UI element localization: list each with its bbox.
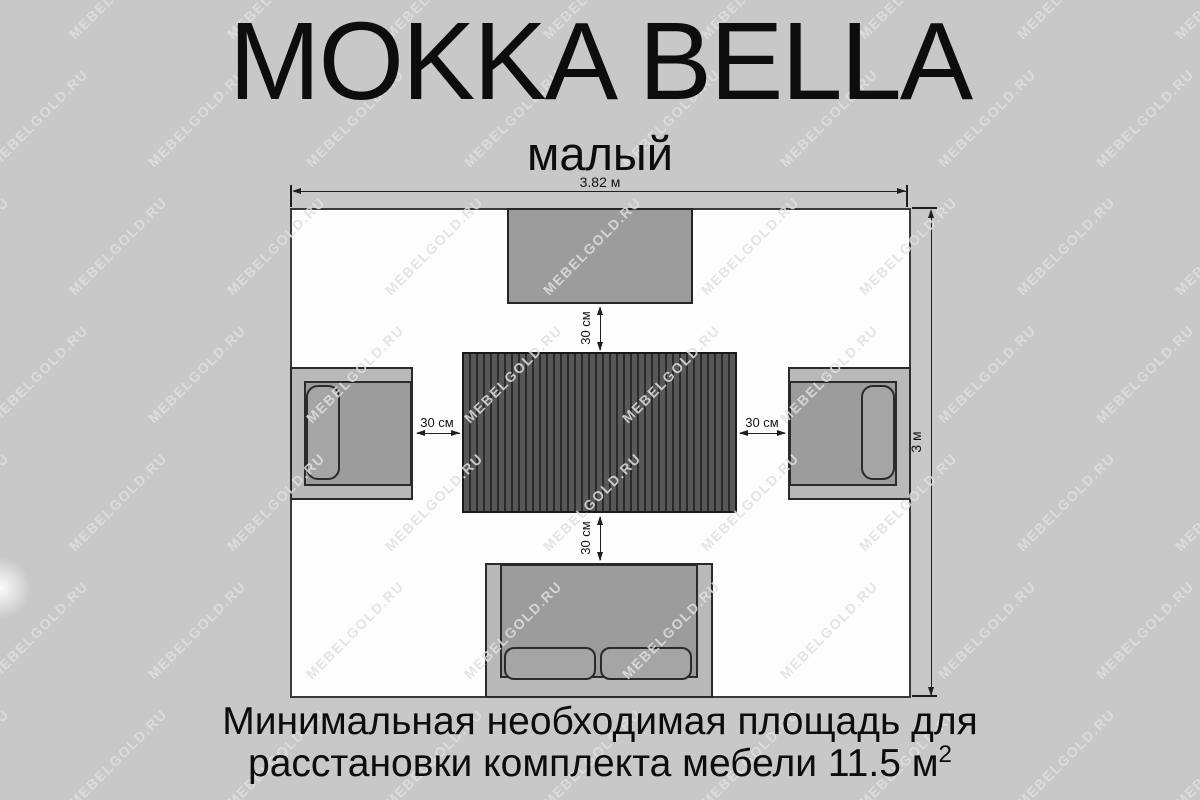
caption: Минимальная необходимая площадь для расс… [0, 701, 1200, 785]
caption-line-2-text: расстановки комплекта мебели 11.5 м [248, 742, 939, 785]
arrow-right-icon [777, 430, 786, 436]
caption-line-2: расстановки комплекта мебели 11.5 м2 [0, 742, 1200, 784]
arrow-down-icon [597, 342, 603, 351]
room-height-label: 3 м [908, 419, 924, 465]
page-title: MOKKA BELLA [0, 6, 1200, 118]
armchair-right-cushion [861, 385, 895, 480]
arrow-left-icon [416, 430, 425, 436]
arrow-down-icon [597, 552, 603, 561]
width-dimension-line [294, 191, 906, 192]
arrow-left-icon [292, 188, 301, 194]
dimension-extension-right [906, 185, 908, 207]
arrow-left-icon [739, 430, 748, 436]
caption-superscript: 2 [939, 741, 952, 768]
caption-line-1: Минимальная необходимая площадь для [0, 701, 1200, 742]
arrow-up-icon [597, 516, 603, 525]
arrow-up-icon [597, 306, 603, 315]
clearance-bottom-label: 30 см [578, 515, 594, 561]
clearance-top-label: 30 см [578, 305, 594, 351]
arrow-up-icon [928, 209, 934, 218]
height-dimension-line [931, 211, 932, 695]
clearance-left-label: 30 см [407, 415, 467, 430]
arrow-right-icon [897, 188, 906, 194]
arrow-down-icon [928, 687, 934, 696]
page-subtitle: малый [0, 126, 1200, 181]
armchair-left-cushion [306, 385, 340, 480]
arrow-right-icon [451, 430, 460, 436]
sofa-cushion-right [600, 647, 692, 680]
armchair-left [290, 367, 413, 500]
bench-top-view [507, 208, 693, 304]
dining-table-top-view [462, 352, 737, 513]
sofa-top-view [485, 563, 713, 698]
armchair-right [788, 367, 911, 500]
page: 3.82 м 3 м 30 см [0, 0, 1200, 800]
clearance-right-label: 30 см [732, 415, 792, 430]
sofa-cushion-left [504, 647, 596, 680]
